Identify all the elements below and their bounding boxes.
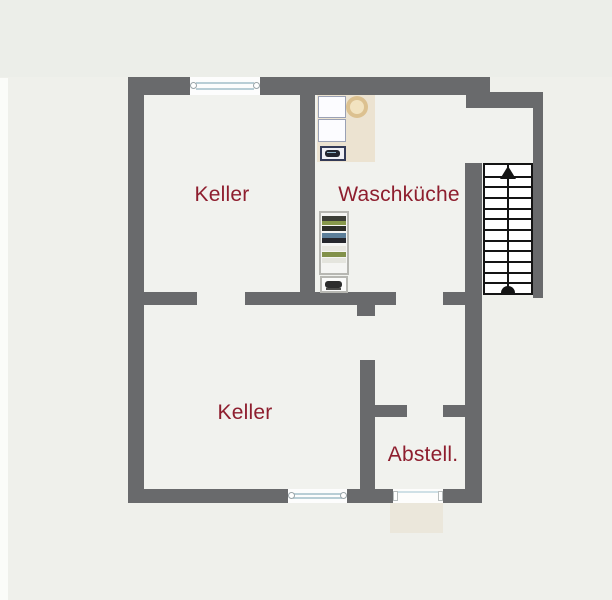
laundry-basket-inner (350, 100, 364, 114)
stair-start-marker-icon (501, 286, 515, 293)
window-line (293, 497, 342, 499)
window-top (190, 77, 260, 95)
wall-abstell-top-left (375, 405, 407, 417)
window-line (196, 88, 254, 90)
dryer (318, 119, 346, 142)
stair-up-arrow-icon (500, 166, 516, 179)
wall-middle-a (128, 292, 197, 305)
washer-slat (327, 152, 336, 153)
wall-bottom-left (128, 489, 288, 503)
window-cap (288, 492, 295, 499)
wall-abstell-left (360, 360, 375, 503)
wall-top-right (260, 77, 490, 95)
shelf-item (322, 221, 346, 225)
left-white-strip (0, 78, 8, 600)
window-cap (190, 82, 197, 89)
storage-box-item (325, 281, 342, 288)
window-line (293, 493, 342, 495)
washing-machine (318, 96, 346, 118)
wall-top-left (128, 77, 190, 95)
room-label-keller-upper: Keller (195, 184, 250, 205)
laundry-basket (346, 96, 368, 118)
shelf-item (322, 258, 346, 263)
door-threshold-line (398, 491, 438, 493)
storage-box (320, 276, 348, 293)
wall-right-stair-section (533, 100, 543, 298)
wall-top-stair-section (466, 92, 543, 108)
entrance-door-opening (393, 489, 443, 503)
floor-plan: Keller Waschküche Keller Abstell. (0, 0, 612, 600)
wall-abstell-top-right (443, 405, 465, 417)
door-cap (393, 491, 398, 501)
shelf-item (322, 246, 346, 251)
wall-right-interior (465, 163, 482, 503)
window-cap (340, 492, 347, 499)
wall-stub-below-middle (357, 305, 375, 316)
window-bottom (288, 489, 347, 503)
shelf-item (322, 252, 346, 257)
room-label-keller-lower: Keller (218, 402, 273, 423)
washing-machine-icon (320, 146, 346, 161)
staircase (483, 163, 533, 295)
shelf-item (322, 226, 346, 231)
shelving-unit (319, 211, 349, 275)
window-line (196, 82, 254, 84)
stair-center-line (507, 165, 509, 293)
window-cap (253, 82, 260, 89)
door-cap (438, 491, 443, 501)
wall-middle-b (245, 292, 396, 305)
room-label-abstell: Abstell. (388, 444, 458, 465)
doormat (390, 503, 443, 533)
room-label-waschkueche: Waschküche (338, 184, 459, 205)
wall-left (128, 77, 144, 503)
wall-divider-keller-waschkueche (300, 95, 315, 292)
storage-box-item (326, 288, 341, 290)
shelf-item (322, 238, 346, 243)
wall-middle-c (443, 292, 465, 305)
